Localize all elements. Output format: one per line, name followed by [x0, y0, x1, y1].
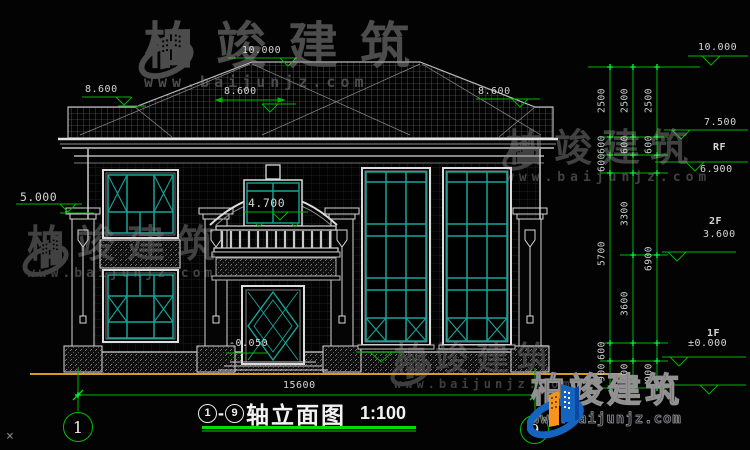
dim-level-7500: 7.500 [704, 117, 737, 128]
vdim-c-6900: 6900 [644, 237, 655, 281]
left-windows [100, 170, 180, 342]
vdim-b-3600: 3600 [620, 282, 631, 326]
dim-overall-width: 15600 [283, 380, 316, 391]
title-name: 轴立面图 [246, 396, 346, 430]
vdim-c-600: 600 [644, 123, 655, 167]
dim-level-10000: 10.000 [698, 42, 737, 53]
dim-ridge-elevation: 10.000 [242, 45, 281, 56]
axis-bubble-1: 1 [63, 412, 93, 442]
dim-balcony-elevation: 4.700 [248, 196, 285, 210]
dim-eave-left: 8.600 [85, 84, 118, 95]
roof [58, 62, 558, 163]
title-axis-from: 1 [198, 404, 217, 423]
baijun-logo-color-icon [527, 373, 591, 445]
vdim-b-2500: 2500 [620, 79, 631, 123]
vdim-b-600: 600 [620, 123, 631, 167]
dim-level-0000: ±0.000 [688, 338, 727, 349]
drawing-title: 1 - 9 轴立面图 1:100 [198, 396, 406, 430]
vdim-b-3300: 3300 [620, 192, 631, 236]
floor-label-rf: RF [713, 142, 726, 153]
dim-porch-elevation: 5.000 [20, 190, 57, 204]
brand-logo-block: 柏竣建筑 www.baijunjz.com [527, 373, 683, 427]
title-underline-shadow [202, 430, 416, 432]
floor-label-2f: 2F [709, 216, 722, 227]
dim-eave-mid: 8.600 [224, 86, 257, 97]
dim-entry-elevation: -0.050 [229, 338, 268, 349]
title-scale: 1:100 [360, 403, 406, 424]
dim-eave-right: 8.600 [478, 86, 511, 97]
corner-mark: × [6, 429, 14, 444]
title-underline [202, 426, 416, 429]
vdim-a-5700: 5700 [597, 232, 608, 276]
vdim-a-2500: 2500 [597, 79, 608, 123]
title-axis-to: 9 [225, 404, 244, 423]
vdim-a-600b: 600 [597, 141, 608, 185]
title-dash: - [218, 403, 224, 424]
dim-level-3600: 3.600 [703, 229, 736, 240]
vdim-c-2500: 2500 [644, 79, 655, 123]
dim-level-6900: 6.900 [700, 164, 733, 175]
cad-elevation-screenshot: 柏竣建筑 www.baijunjz.com 柏竣建筑 www.baijunjz.… [0, 0, 750, 450]
